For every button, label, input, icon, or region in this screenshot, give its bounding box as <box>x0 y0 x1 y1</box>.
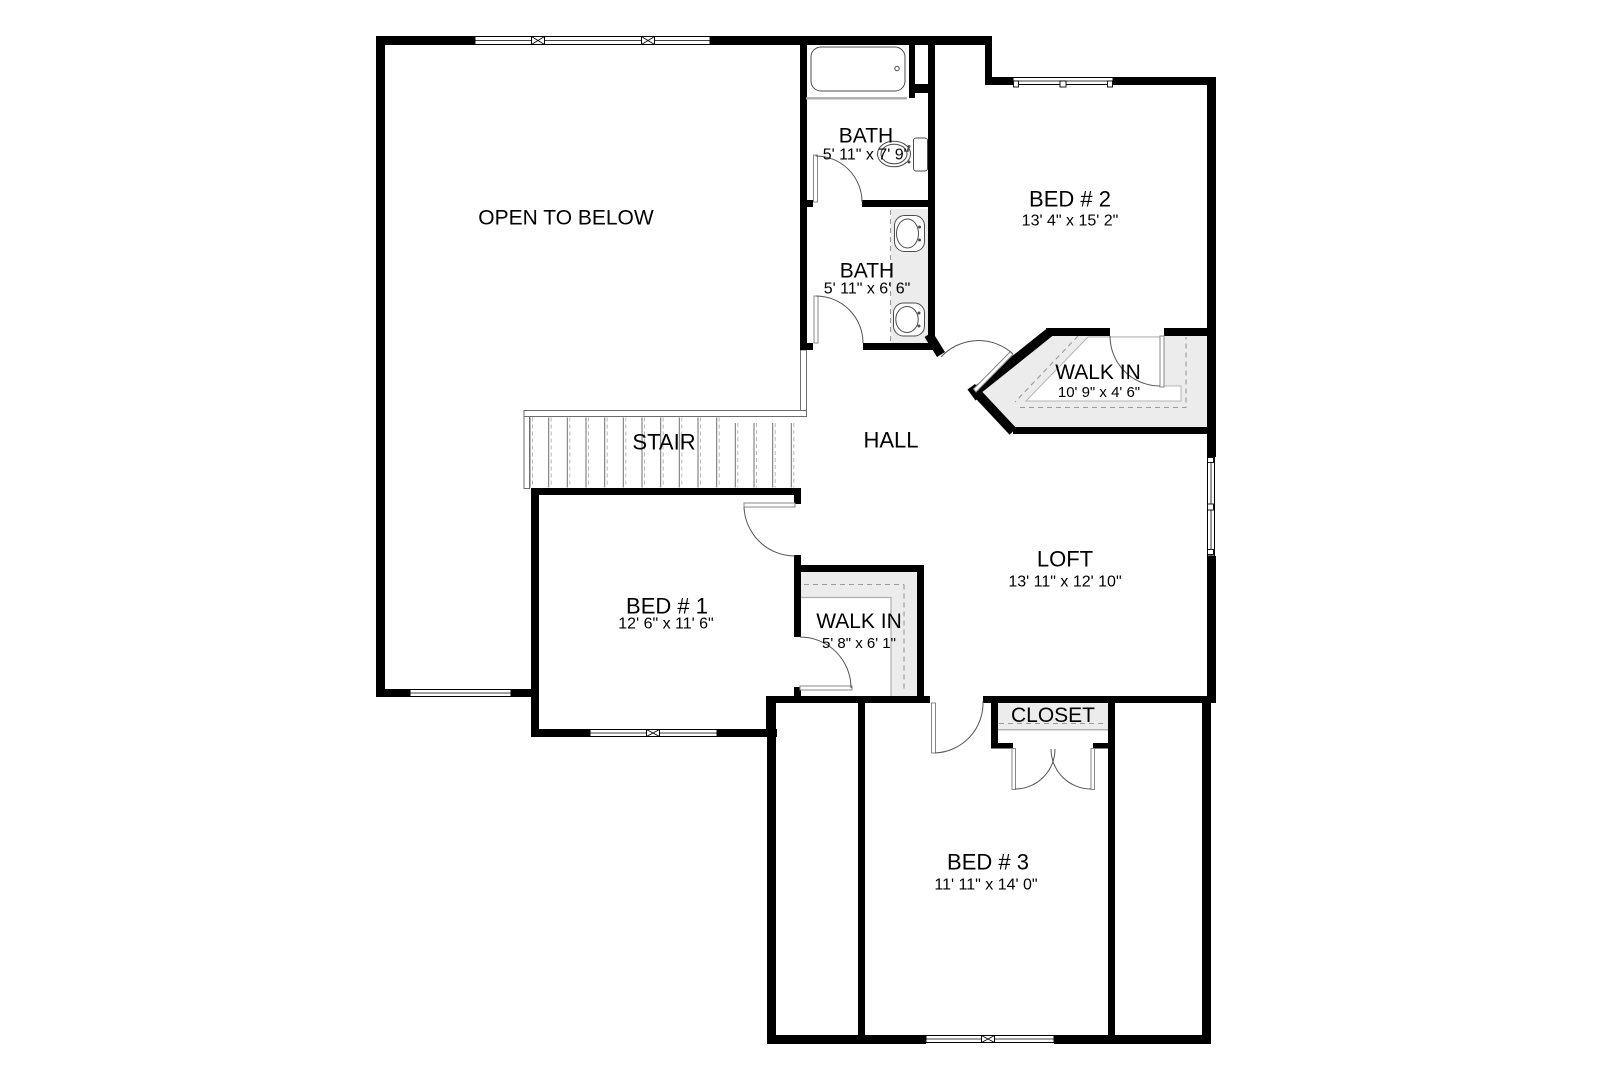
svg-text:BATH: BATH <box>839 124 893 147</box>
svg-text:11' 11" x 14' 0": 11' 11" x 14' 0" <box>934 876 1037 893</box>
svg-text:10' 9" x 4' 6": 10' 9" x 4' 6" <box>1058 384 1140 401</box>
svg-text:BED # 3: BED # 3 <box>947 850 1029 875</box>
svg-text:5' 11" x 7' 9": 5' 11" x 7' 9" <box>823 147 910 164</box>
svg-text:STAIR: STAIR <box>632 430 695 455</box>
svg-text:OPEN TO BELOW: OPEN TO BELOW <box>478 206 654 229</box>
svg-text:13' 11" x 12' 10": 13' 11" x 12' 10" <box>1008 573 1121 590</box>
svg-text:5' 11" x 6' 6": 5' 11" x 6' 6" <box>824 281 911 298</box>
svg-text:BATH: BATH <box>840 259 894 282</box>
svg-text:BED # 2: BED # 2 <box>1029 187 1111 212</box>
svg-text:WALK IN: WALK IN <box>816 610 902 633</box>
svg-text:5' 8" x 6' 1": 5' 8" x 6' 1" <box>822 635 896 652</box>
svg-text:LOFT: LOFT <box>1037 547 1093 572</box>
svg-text:HALL: HALL <box>863 428 918 453</box>
svg-text:12' 6" x 11' 6": 12' 6" x 11' 6" <box>618 616 713 633</box>
svg-text:13' 4" x 15' 2": 13' 4" x 15' 2" <box>1022 213 1119 230</box>
svg-text:CLOSET: CLOSET <box>1011 704 1095 727</box>
svg-text:WALK IN: WALK IN <box>1055 361 1141 384</box>
